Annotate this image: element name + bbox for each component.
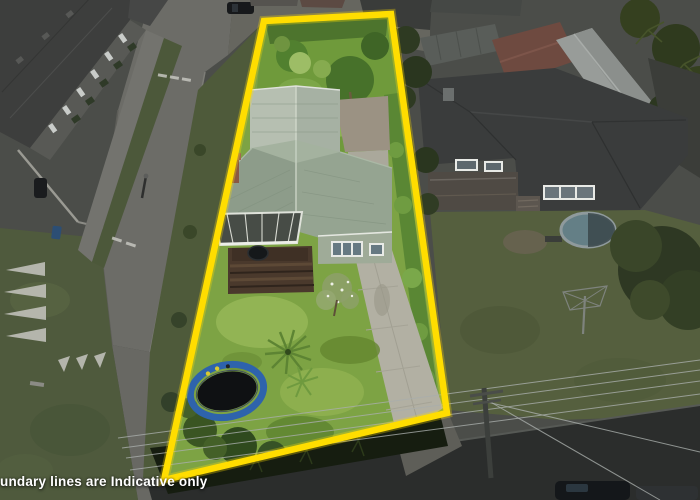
parked-car-top	[227, 2, 254, 14]
swimming-pool	[561, 213, 615, 247]
front-facade	[318, 232, 392, 264]
light-bush	[289, 52, 311, 74]
neighbor-chimney	[443, 88, 454, 101]
boundary-disclaimer: undary lines are Indicative only	[0, 474, 207, 489]
deck-steps	[228, 246, 314, 294]
garden-bench	[545, 236, 562, 242]
recycle-bin	[51, 226, 62, 240]
street-lamp-head	[144, 174, 149, 179]
parked-car-townhouse	[34, 178, 47, 198]
conservatory-roof	[214, 212, 302, 245]
aerial-photo-canvas	[0, 0, 700, 500]
aerial-photo: undary lines are Indicative only	[0, 0, 700, 500]
round-tank	[248, 246, 268, 260]
